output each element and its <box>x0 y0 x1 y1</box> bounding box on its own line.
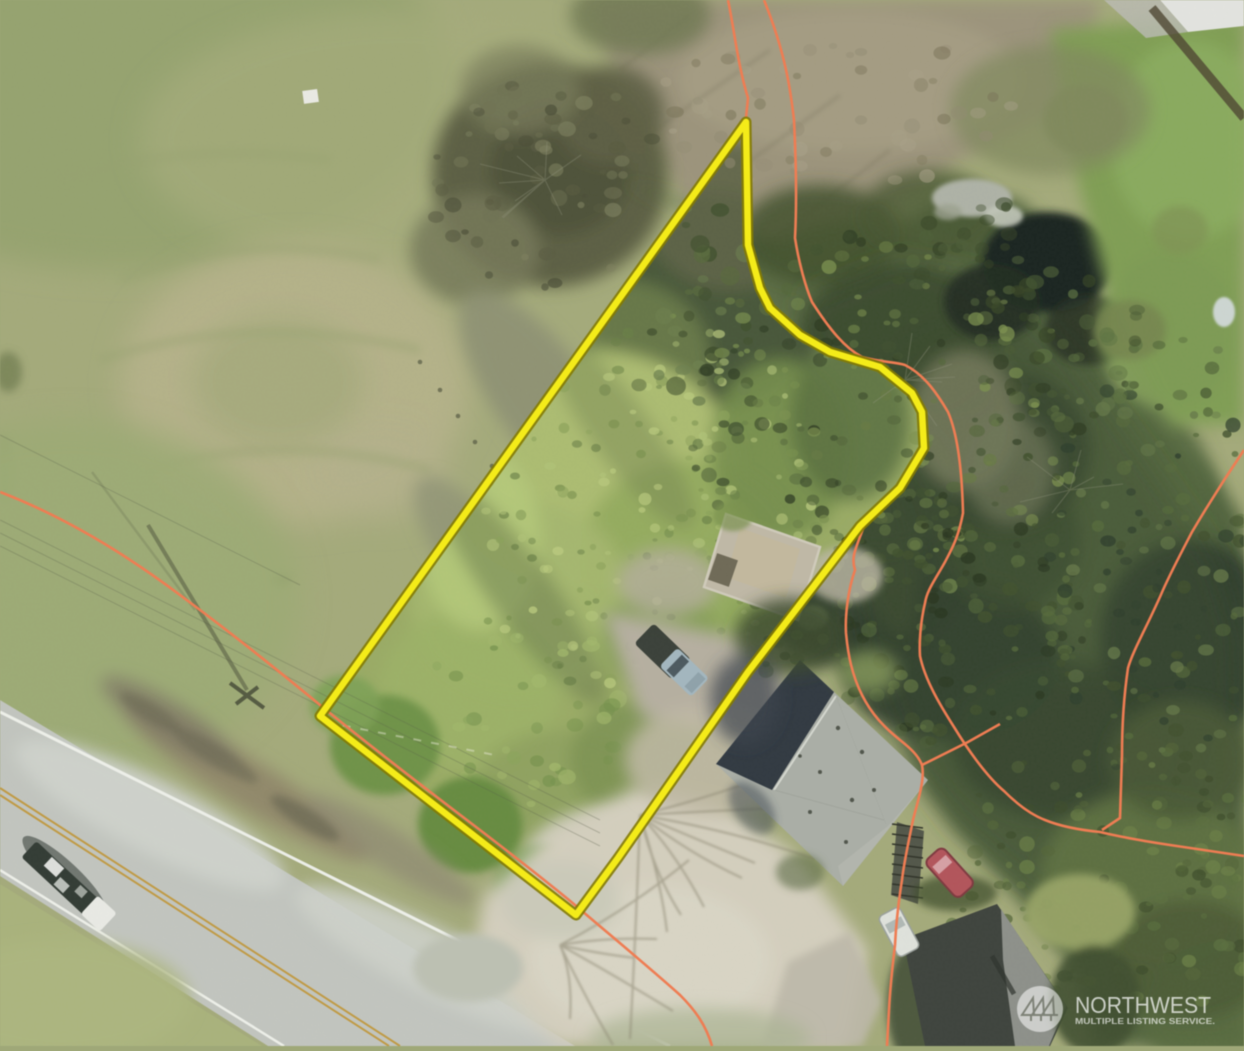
svg-text:MULTIPLE LISTING SERVICE.: MULTIPLE LISTING SERVICE. <box>1075 1017 1215 1026</box>
svg-text:NORTHWEST: NORTHWEST <box>1075 992 1211 1018</box>
